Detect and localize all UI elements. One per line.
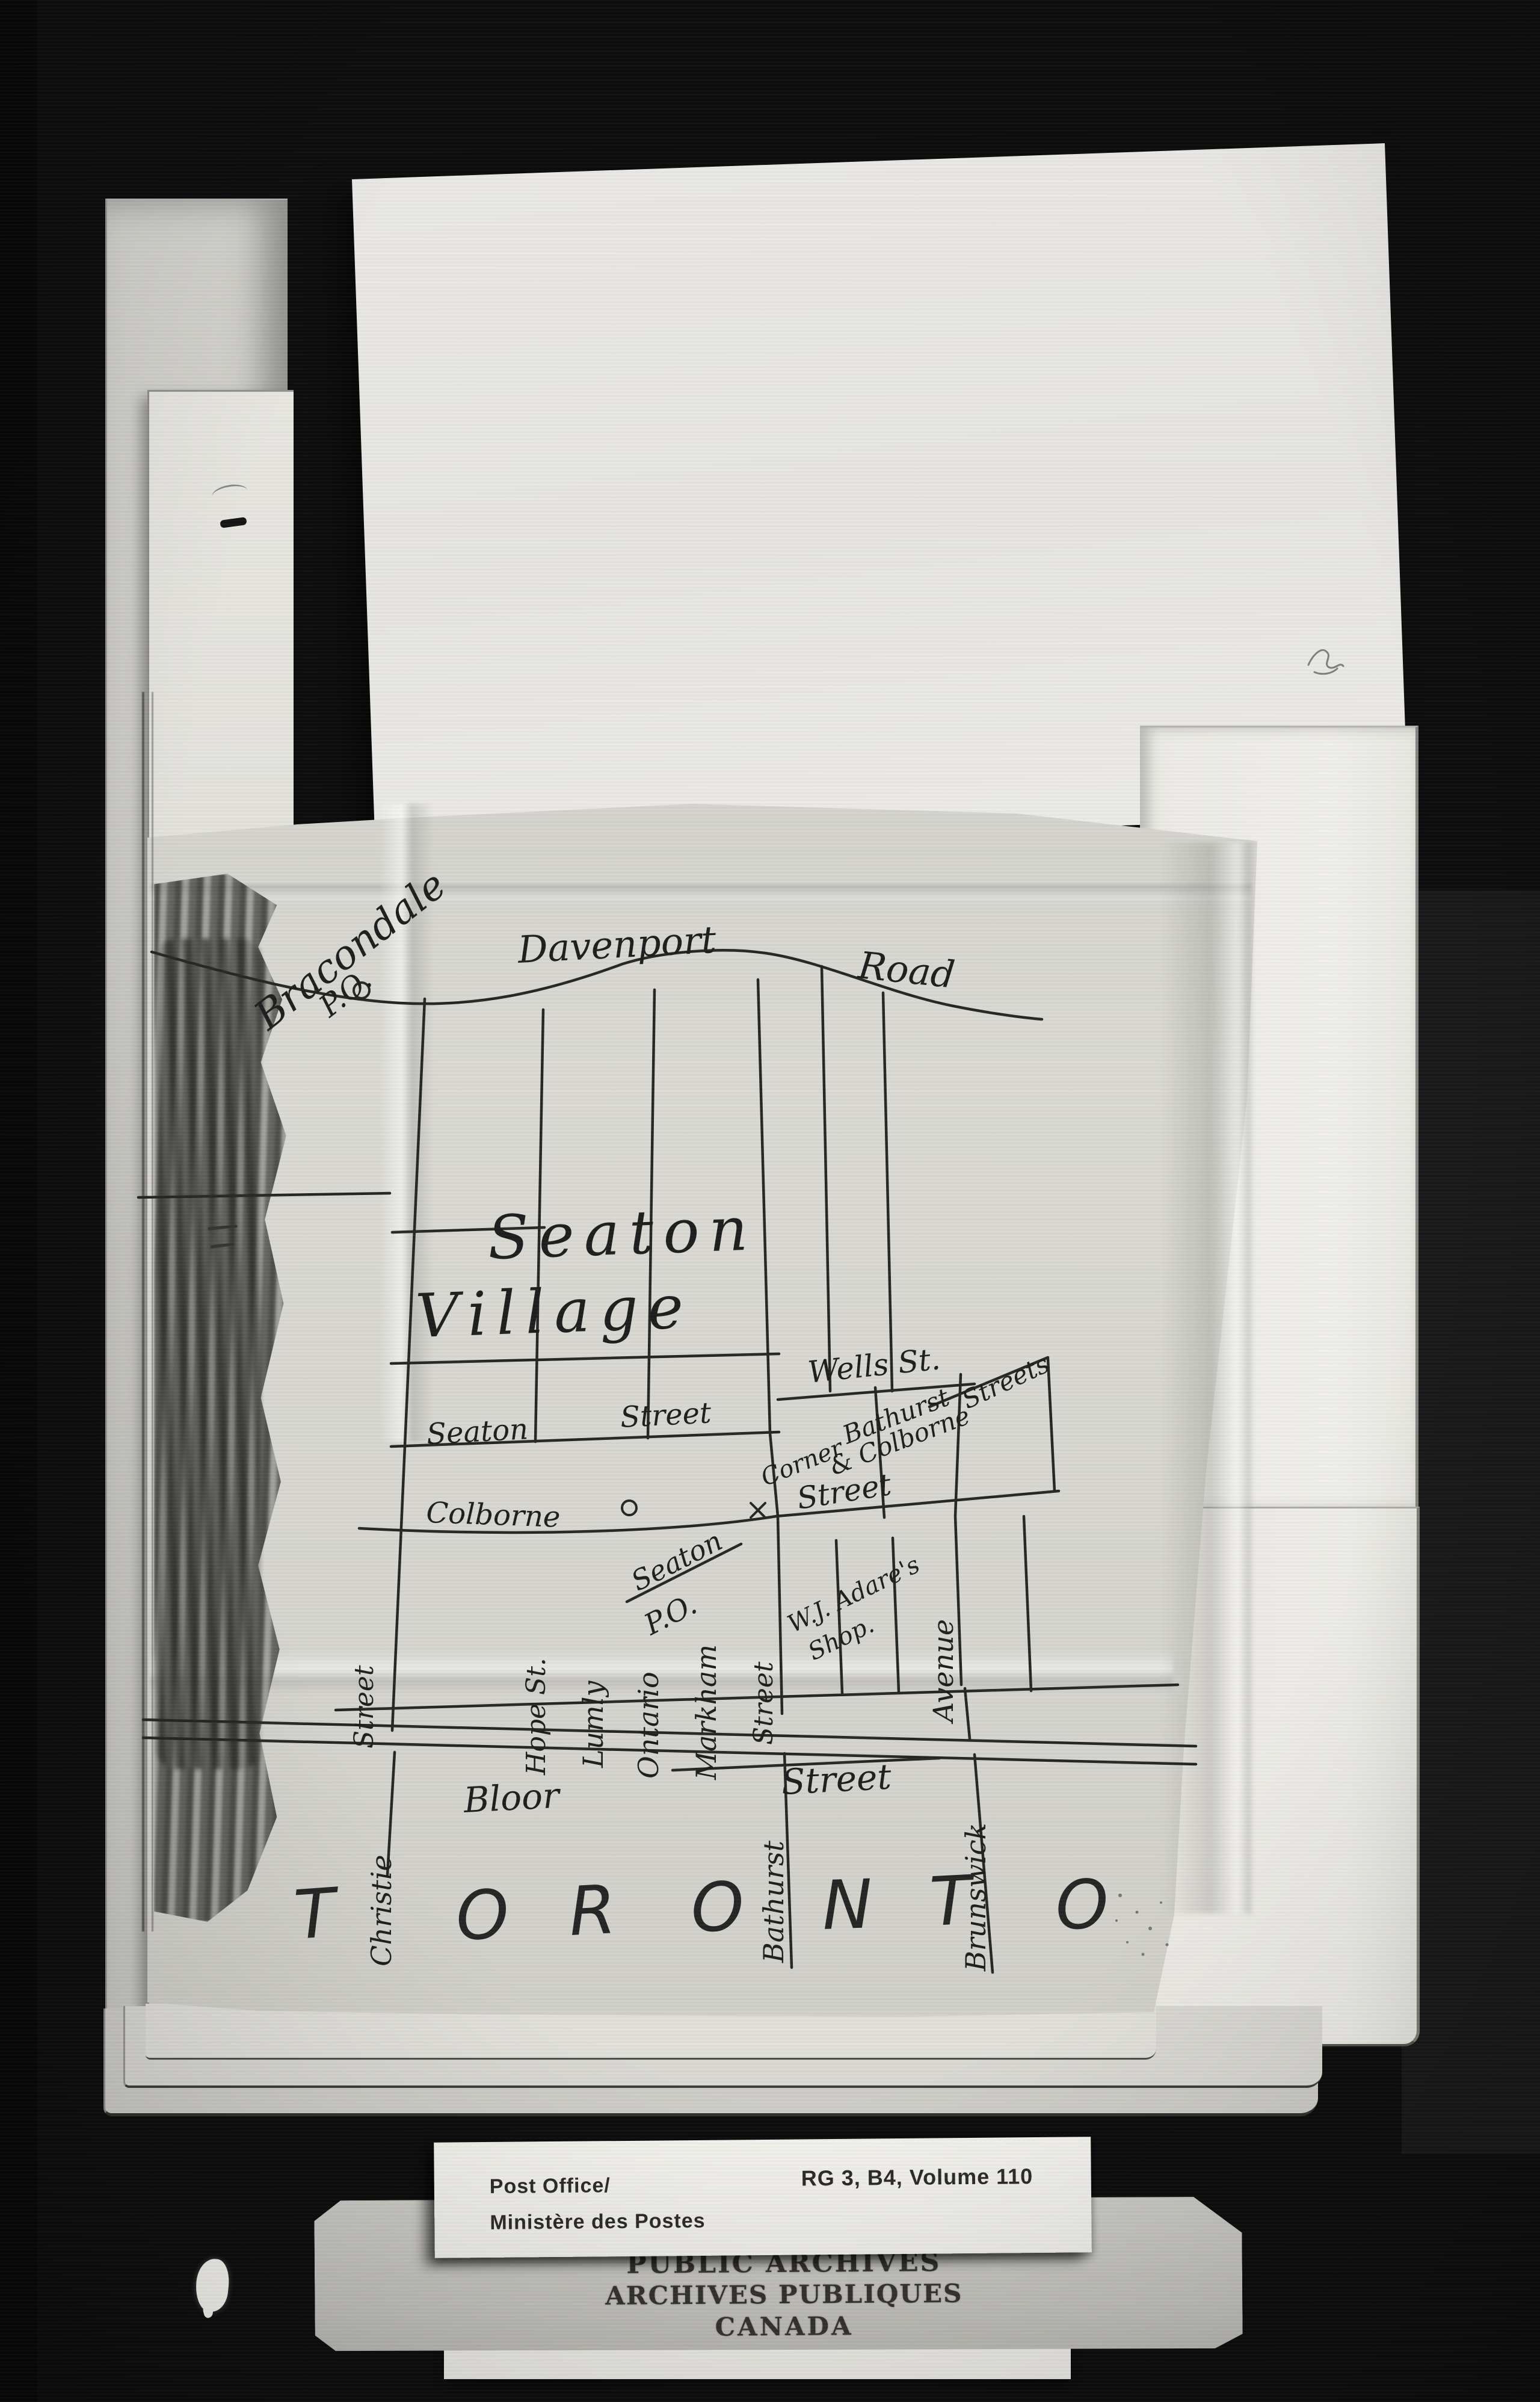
label-christie: Christie: [365, 1854, 398, 1966]
department-label: Post Office/ Ministère des Postes: [490, 2167, 706, 2241]
public-archives-stamp: PUBLIC ARCHIVES ARCHIVES PUBLIQUES CANAD…: [567, 2246, 1001, 2342]
label-davenport: Davenport: [516, 918, 717, 972]
left-lot-line: [138, 1193, 390, 1197]
label-wells-st: Wells St.: [806, 1341, 942, 1390]
department-fr: Ministère des Postes: [490, 2203, 706, 2241]
edge-tick-marks: [209, 1226, 236, 1247]
toronto-letter-o3: O: [1054, 1865, 1110, 1945]
department-en: Post Office/: [490, 2167, 706, 2205]
label-ontario: Ontario: [632, 1672, 665, 1779]
record-group-reference: RG 3, B4, Volume 110: [801, 2164, 1033, 2191]
microfilm-frame: { "map": { "po_top": { "name": "Braconda…: [0, 0, 1540, 2402]
toronto-letter-o2: O: [689, 1868, 745, 1948]
label-bathurst-street-word: Street: [748, 1661, 779, 1745]
seaton-village-map: Bracondale P.O. Davenport Road Seaton Vi…: [0, 0, 1540, 2402]
note-streets: Streets: [958, 1349, 1054, 1415]
label-christie-street-word: Street: [349, 1665, 380, 1749]
label-seaton-street-2: Street: [620, 1396, 713, 1434]
mid-block-line: [391, 1354, 779, 1363]
map-speckles: [1115, 1894, 1169, 1956]
stamp-line-3: CANADA: [567, 2310, 1000, 2342]
map-labels: Bracondale P.O. Davenport Road Seaton Vi…: [245, 862, 1054, 1972]
lower-lot-line-3: [1024, 1516, 1031, 1691]
label-seaton-street-1: Seaton: [426, 1412, 529, 1451]
toronto-letter-o1: O: [454, 1876, 511, 1956]
label-seaton-po-2: P.O.: [638, 1587, 702, 1642]
label-avenue: Avenue: [927, 1619, 959, 1724]
label-road: Road: [855, 943, 956, 996]
street-lines: [138, 650, 1343, 1972]
label-bathurst: Bathurst: [757, 1840, 790, 1963]
toronto-letter-r: R: [567, 1871, 618, 1951]
label-lumly: Lumly: [577, 1680, 609, 1768]
pencil-scribble: [1308, 650, 1343, 673]
block-line-b: [1048, 1359, 1055, 1491]
label-seaton-po: Seaton: [626, 1524, 727, 1598]
seaton-po-marker: [622, 1501, 636, 1515]
label-bloor-street-word: Street: [780, 1756, 893, 1803]
label-seaton-village-2: Village: [414, 1271, 694, 1351]
reference-label-card: Post Office/ Ministère des Postes RG 3, …: [434, 2137, 1092, 2258]
vertical-line-3: [822, 966, 830, 1391]
toronto-letter-t1: T: [292, 1874, 343, 1955]
label-bloor: Bloor: [462, 1775, 562, 1821]
corner-x-mark: [751, 1503, 765, 1517]
vertical-line-4: [883, 993, 892, 1391]
label-hope-st: Hope St.: [521, 1658, 552, 1776]
label-markham: Markham: [690, 1644, 722, 1780]
label-seaton-village-1: Seaton: [487, 1193, 759, 1273]
label-colborne: Colborne: [426, 1496, 561, 1534]
toronto-letter-n: N: [821, 1865, 873, 1945]
stamp-line-2: ARCHIVES PUBLIQUES: [567, 2278, 1000, 2311]
